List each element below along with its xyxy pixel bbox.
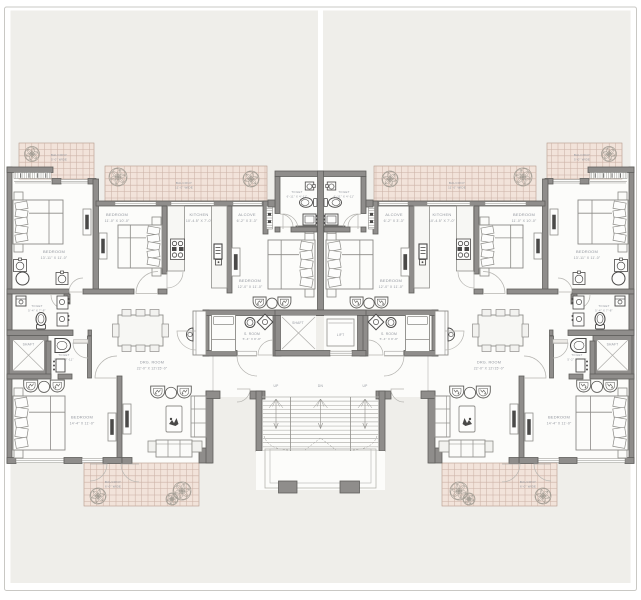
svg-text:6'-0" WIDE: 6'-0" WIDE [105,485,121,489]
svg-text:TOILET: TOILET [31,304,42,308]
svg-text:10'-4.5" X 7'-0": 10'-4.5" X 7'-0" [429,219,456,223]
svg-text:5'-4" X 7'-8": 5'-4" X 7'-8" [595,309,613,313]
svg-text:DN: DN [318,384,324,388]
svg-text:ALCOVE: ALCOVE [385,212,403,217]
svg-text:11'-0" X 10'-0": 11'-0" X 10'-0" [512,219,537,223]
svg-text:BEDROOM: BEDROOM [43,249,65,254]
svg-text:13'-11" X 11'-0": 13'-11" X 11'-0" [574,256,601,260]
svg-text:14'-4" X 11'-0": 14'-4" X 11'-0" [547,422,572,426]
svg-text:5'-0" WIDE: 5'-0" WIDE [51,158,67,162]
svg-text:12'-0" X 11'-0": 12'-0" X 11'-0" [238,285,263,289]
svg-text:SHAFT: SHAFT [292,321,304,325]
svg-text:BALCONY: BALCONY [105,480,121,484]
svg-text:UP: UP [363,384,369,388]
svg-text:BALCONY: BALCONY [176,181,192,185]
svg-text:BEDROOM: BEDROOM [106,212,128,217]
svg-text:11'-0" WIDE: 11'-0" WIDE [175,186,193,190]
svg-text:TOILET: TOILET [598,304,609,308]
svg-text:DRG. ROOM: DRG. ROOM [477,361,501,365]
svg-text:SHAFT: SHAFT [23,343,35,347]
svg-text:ALCOVE: ALCOVE [238,212,256,217]
svg-text:BEDROOM: BEDROOM [576,249,598,254]
svg-text:UP: UP [274,384,280,388]
svg-text:BEDROOM: BEDROOM [548,415,570,420]
svg-text:TOILET: TOILET [58,353,69,357]
svg-text:22'-0" X 12'/15'-0": 22'-0" X 12'/15'-0" [137,367,168,371]
svg-text:BALCONY: BALCONY [51,153,67,157]
svg-text:DRG. ROOM: DRG. ROOM [140,361,164,365]
svg-text:KITCHEN: KITCHEN [433,212,452,217]
svg-text:TOILET: TOILET [571,353,582,357]
svg-text:5'-0" WIDE: 5'-0" WIDE [574,158,590,162]
svg-text:S. ROOM: S. ROOM [244,332,260,336]
svg-text:TOILET: TOILET [338,190,349,194]
svg-text:10'-4.5" X 7'-0": 10'-4.5" X 7'-0" [186,219,213,223]
svg-text:SHAFT: SHAFT [607,343,619,347]
svg-text:KITCHEN: KITCHEN [190,212,209,217]
svg-text:12'-0" X 11'-0": 12'-0" X 11'-0" [379,285,404,289]
svg-text:22'-0" X 12'/15'-0": 22'-0" X 12'/15'-0" [474,367,505,371]
svg-text:5'-4" X 7'-8": 5'-4" X 7'-8" [28,309,46,313]
svg-text:BEDROOM: BEDROOM [71,415,93,420]
svg-text:5'-4" X 8'-8": 5'-4" X 8'-8" [380,337,399,341]
svg-text:11'-0" WIDE: 11'-0" WIDE [448,186,466,190]
svg-text:TOILET: TOILET [291,190,302,194]
svg-text:BALCONY: BALCONY [574,153,590,157]
svg-text:6'-0" WIDE: 6'-0" WIDE [520,485,536,489]
svg-text:S. ROOM: S. ROOM [381,332,397,336]
svg-text:BEDROOM: BEDROOM [239,278,261,283]
svg-text:13'-11" X 11'-0": 13'-11" X 11'-0" [41,256,68,260]
svg-text:6'-2" X 3'-3": 6'-2" X 3'-3" [237,219,258,223]
svg-text:BALCONY: BALCONY [520,480,536,484]
svg-text:6'-2" X 3'-3": 6'-2" X 3'-3" [384,219,405,223]
svg-text:5'-4" X 8'-8": 5'-4" X 8'-8" [243,337,262,341]
svg-text:LIFT: LIFT [337,333,345,337]
svg-text:BEDROOM: BEDROOM [513,212,535,217]
svg-text:BALCONY: BALCONY [449,181,465,185]
svg-text:BEDROOM: BEDROOM [380,278,402,283]
svg-text:11'-0" X 10'-0": 11'-0" X 10'-0" [105,219,130,223]
svg-text:14'-4" X 11'-0": 14'-4" X 11'-0" [70,422,95,426]
